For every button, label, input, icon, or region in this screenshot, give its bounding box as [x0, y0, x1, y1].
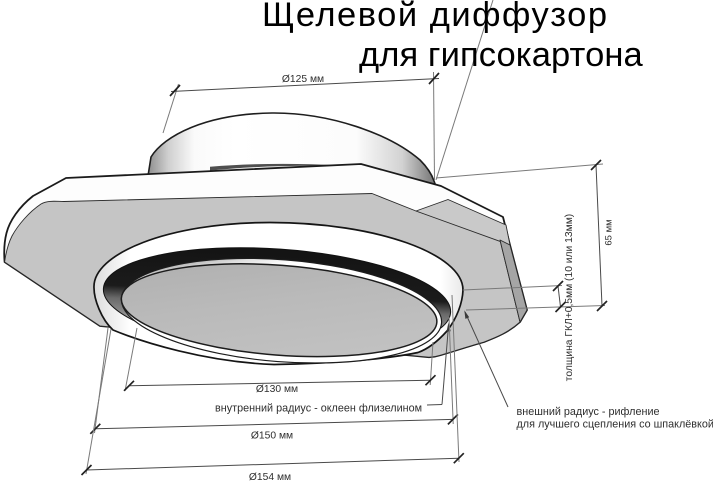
svg-text:Ø154 мм: Ø154 мм	[249, 472, 291, 483]
svg-text:65 мм: 65 мм	[604, 219, 615, 245]
svg-text:толщина ГКЛ+0,5мм (10 или 13мм: толщина ГКЛ+0,5мм (10 или 13мм)	[564, 214, 575, 381]
svg-text:внутренний радиус - оклеен фли: внутренний радиус - оклеен флизелином	[215, 403, 422, 415]
svg-text:Ø150 мм: Ø150 мм	[251, 431, 293, 442]
svg-text:для лучшего сцепления со шпакл: для лучшего сцепления со шпаклёвкой	[517, 419, 713, 431]
svg-text:Ø125 мм: Ø125 мм	[282, 74, 324, 85]
svg-text:внешний радиус - рифление: внешний радиус - рифление	[517, 406, 660, 418]
svg-text:Ø130 мм: Ø130 мм	[256, 384, 298, 395]
